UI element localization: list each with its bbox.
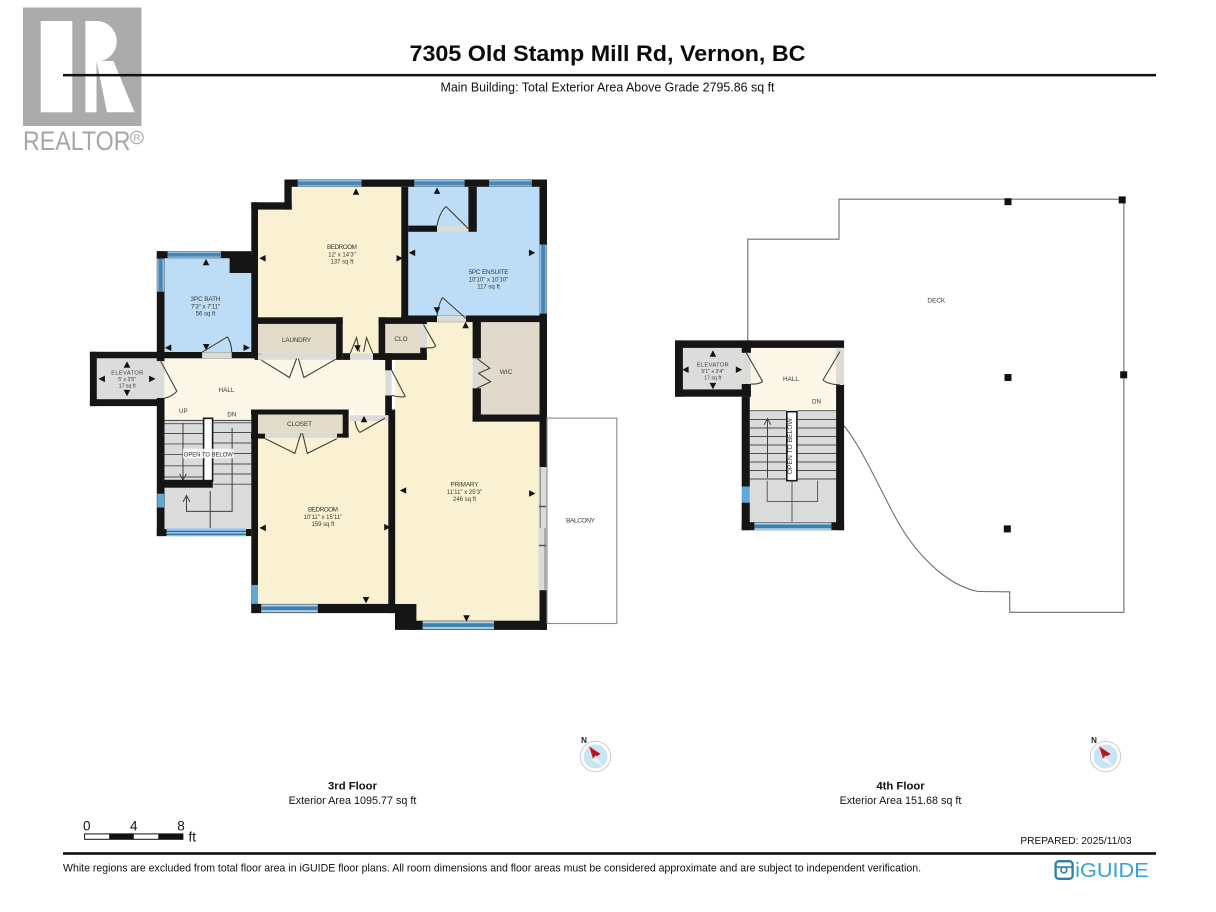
svg-text:PRIMARY: PRIMARY	[451, 482, 480, 489]
svg-text:DECK: DECK	[927, 297, 945, 304]
svg-text:0: 0	[83, 819, 91, 834]
svg-text:BEDROOM: BEDROOM	[308, 507, 338, 514]
svg-text:246 sq ft: 246 sq ft	[453, 497, 476, 503]
svg-text:Exterior Area 151.68 sq ft: Exterior Area 151.68 sq ft	[840, 795, 962, 807]
svg-text:12' x 14'3": 12' x 14'3"	[328, 253, 355, 259]
svg-text:LAUNDRY: LAUNDRY	[282, 337, 312, 344]
svg-text:DN: DN	[812, 399, 821, 406]
svg-text:4th Floor: 4th Floor	[876, 780, 925, 792]
svg-text:CLO: CLO	[394, 336, 407, 343]
svg-text:117 sq ft: 117 sq ft	[477, 285, 500, 291]
svg-text:OPEN TO BELOW: OPEN TO BELOW	[184, 451, 233, 458]
svg-text:11'11" x 25'3": 11'11" x 25'3"	[447, 490, 482, 496]
svg-text:3PC BATH: 3PC BATH	[191, 296, 221, 303]
svg-text:4: 4	[130, 819, 138, 834]
svg-text:17 sq ft: 17 sq ft	[119, 384, 137, 390]
svg-text:Exterior Area 1095.77 sq ft: Exterior Area 1095.77 sq ft	[289, 795, 417, 807]
svg-text:7305 Old Stamp Mill Rd, Vernon: 7305 Old Stamp Mill Rd, Vernon, BC	[410, 41, 806, 66]
svg-text:CLOSET: CLOSET	[287, 421, 312, 428]
svg-text:3rd Floor: 3rd Floor	[328, 780, 378, 792]
svg-text:7'3" x 7'11": 7'3" x 7'11"	[191, 305, 220, 311]
svg-text:8: 8	[177, 819, 185, 834]
svg-text:OPEN TO BELOW: OPEN TO BELOW	[787, 418, 794, 474]
svg-text:REALTOR: REALTOR	[23, 126, 131, 156]
svg-text:ft: ft	[189, 830, 197, 845]
svg-text:10'10" x 10'10": 10'10" x 10'10"	[469, 278, 509, 284]
svg-text:10'11" x 15'11": 10'11" x 15'11"	[304, 515, 343, 521]
svg-text:ELEVATOR: ELEVATOR	[697, 362, 729, 368]
svg-text:DN: DN	[227, 412, 236, 419]
svg-text:iGUIDE: iGUIDE	[1075, 859, 1149, 882]
svg-text:ELEVATOR: ELEVATOR	[111, 370, 143, 376]
svg-text:137 sq ft: 137 sq ft	[330, 260, 353, 266]
svg-text:56 sq ft: 56 sq ft	[196, 312, 216, 318]
svg-text:HALL: HALL	[219, 387, 235, 394]
svg-text:PREPARED: 2025/11/03: PREPARED: 2025/11/03	[1020, 836, 1132, 847]
svg-text:5PC ENSUITE: 5PC ENSUITE	[469, 269, 509, 276]
svg-text:R: R	[133, 133, 140, 144]
svg-text:White regions are excluded fro: White regions are excluded from total fl…	[63, 862, 921, 874]
svg-text:5'1" x 3'4": 5'1" x 3'4"	[701, 369, 724, 375]
svg-text:Main Building: Total Exterior: Main Building: Total Exterior Area Above…	[441, 81, 776, 95]
svg-text:159 sq ft: 159 sq ft	[311, 522, 334, 528]
svg-text:5' x 3'5": 5' x 3'5"	[118, 377, 136, 383]
svg-text:BEDROOM: BEDROOM	[327, 244, 357, 251]
svg-text:WIC: WIC	[500, 369, 513, 376]
svg-text:N: N	[1091, 736, 1097, 745]
svg-text:HALL: HALL	[783, 376, 799, 383]
svg-text:UP: UP	[179, 408, 188, 415]
svg-text:17 sq ft: 17 sq ft	[704, 376, 722, 382]
svg-text:BALCONY: BALCONY	[566, 517, 596, 524]
svg-text:N: N	[581, 736, 587, 745]
